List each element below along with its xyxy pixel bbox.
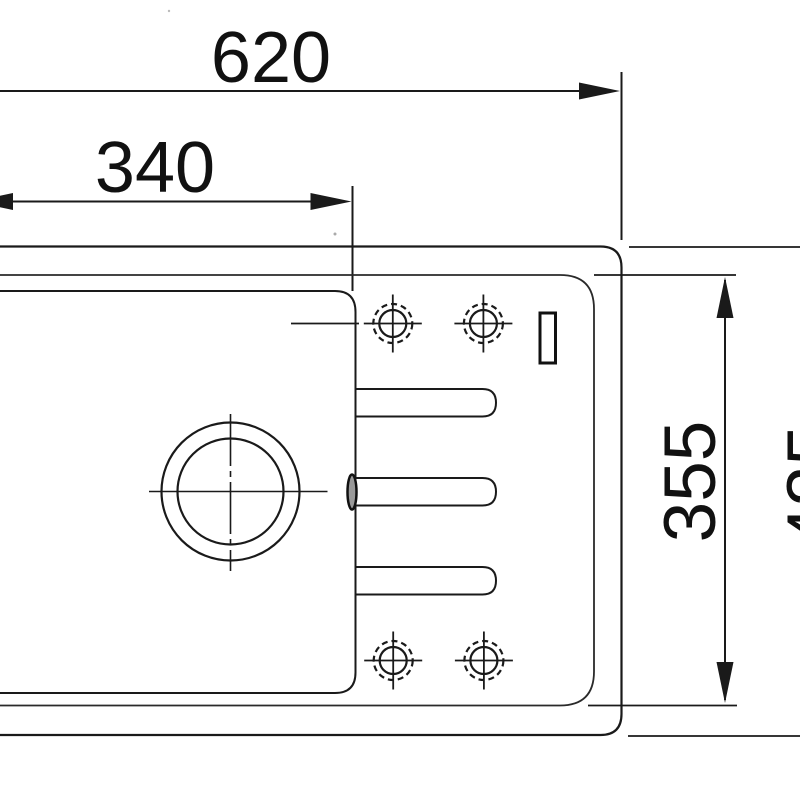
svg-text:620: 620: [211, 18, 331, 98]
svg-text:435: 435: [773, 425, 800, 547]
svg-text:340: 340: [95, 128, 215, 208]
svg-text:355: 355: [650, 421, 731, 543]
